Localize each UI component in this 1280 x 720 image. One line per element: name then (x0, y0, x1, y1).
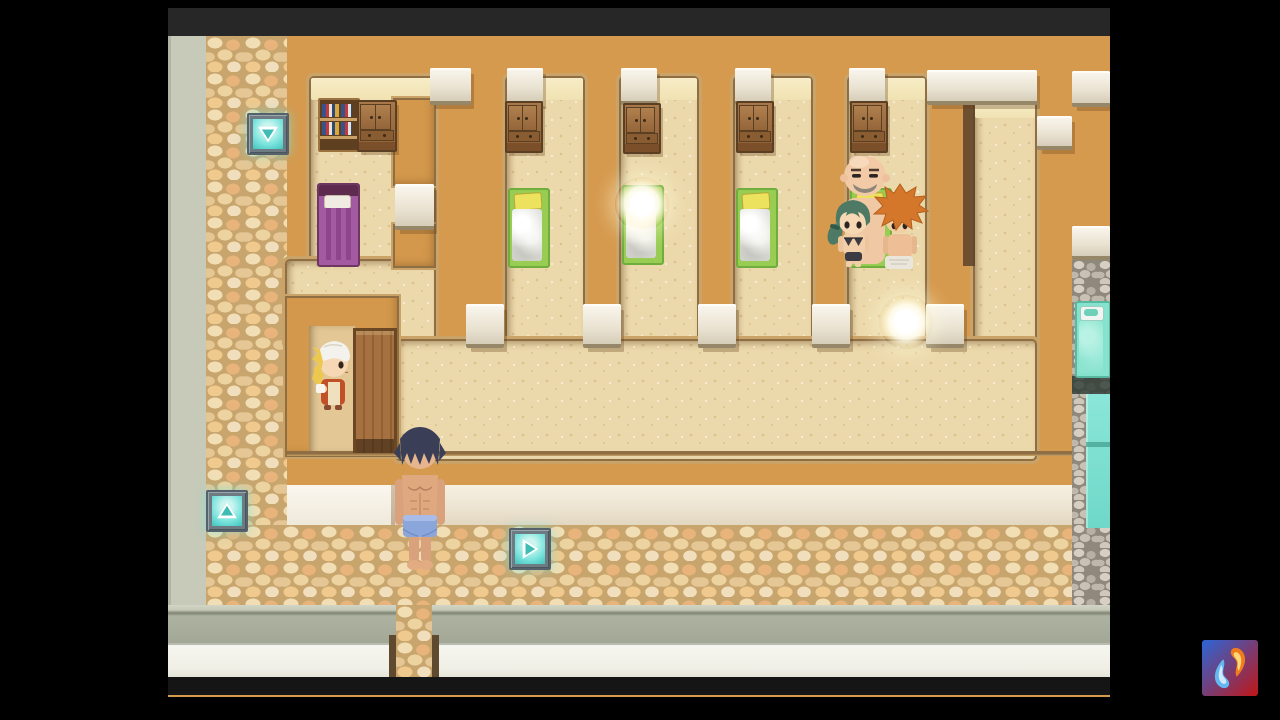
stall1-pillar (395, 100, 434, 184)
cobblestone-path (206, 36, 287, 528)
exit-gap-edge (389, 635, 396, 677)
wall-top-cap (621, 68, 657, 105)
wall-top-cap (507, 68, 543, 105)
green-bed (508, 188, 550, 268)
pillow (324, 195, 351, 209)
teleport-tile-right-arrow[interactable] (509, 528, 551, 570)
main-hall-floor (397, 341, 1035, 459)
wall-top-cap (466, 304, 504, 348)
wardrobe-cabinet (850, 101, 888, 153)
cabinet-door (375, 104, 391, 130)
cabinet-door (508, 105, 523, 131)
wardrobe-cabinet (736, 101, 774, 153)
wardrobe-cabinet (357, 100, 397, 152)
book-row (322, 122, 352, 135)
cabinet-drawer (853, 131, 885, 142)
glow-orb-on-floor (879, 295, 933, 349)
game-window (168, 8, 1110, 697)
shelf (320, 118, 358, 121)
glow-orb-on-bed (615, 177, 669, 231)
cabinet-drawer (626, 133, 658, 144)
letterbox-top-bar (168, 8, 1110, 38)
wall-top-cap (849, 68, 885, 105)
lower-gray-wall (168, 605, 1110, 643)
npc-towel-girl[interactable] (304, 335, 360, 413)
wall-top-cap (927, 70, 1037, 105)
teleport-tile-up-arrow[interactable] (206, 490, 248, 532)
wall-top-cap (698, 304, 736, 348)
cabinet-base (625, 144, 659, 152)
wall-shadow-strip (963, 100, 975, 266)
cabinet-drawer (739, 131, 771, 142)
lit-wall-strip (311, 78, 434, 100)
teleport-tile-down-arrow[interactable] (247, 113, 289, 155)
letterbox-bottom-strip (168, 677, 1110, 695)
cabinet-door (739, 105, 754, 131)
cabinet-base (507, 143, 541, 151)
wall-base-cap (287, 485, 391, 528)
cobblestone-exit-gap (396, 605, 432, 677)
npc-orange-haired-man[interactable] (871, 182, 929, 270)
cabinet-door (640, 107, 655, 133)
lower-white-wall (168, 643, 1110, 679)
wall-top-cap (395, 184, 434, 230)
cobblestone-walkway (206, 525, 1110, 605)
cabinet-base (359, 142, 395, 150)
cabinet-door (753, 105, 768, 131)
flame-logo-icon (1202, 640, 1258, 696)
wall-top-cap (735, 68, 771, 105)
bath-water-divider (1086, 442, 1110, 447)
player-character[interactable] (388, 423, 452, 573)
wall-top-cap (1072, 71, 1110, 107)
wall-top-cap (583, 304, 621, 348)
bath-shadow-band (1072, 376, 1110, 394)
stall1-pillar-foot (395, 226, 434, 266)
recorder-watermark-logo (1202, 640, 1258, 696)
shelf (320, 136, 358, 139)
wardrobe-cabinet (623, 103, 661, 154)
teal-bath-bed (1075, 301, 1110, 378)
cabinet-door (360, 104, 376, 130)
wardrobe-cabinet (505, 101, 543, 153)
lit-wall-strip (975, 103, 1035, 118)
cabinet-door (626, 107, 641, 133)
cabinet-door (522, 105, 537, 131)
bath-water (1086, 394, 1110, 528)
screen (0, 0, 1280, 720)
exit-gap-edge (432, 635, 439, 677)
green-bed (736, 188, 778, 268)
cabinet-base (738, 143, 772, 151)
cabinet-door (853, 105, 868, 131)
outer-wall-strip (168, 36, 210, 605)
purple-bed (317, 183, 360, 267)
bookshelf (318, 98, 360, 152)
cabinet-drawer (360, 130, 394, 141)
wall-top-cap (430, 68, 471, 105)
book-row (322, 104, 352, 117)
blanket (740, 209, 770, 261)
blanket (1079, 321, 1103, 373)
game-scene[interactable] (168, 36, 1110, 697)
wall-top-cap (1037, 116, 1072, 150)
wall-top-cap (812, 304, 850, 348)
cabinet-door (867, 105, 882, 131)
cabinet-drawer (508, 131, 540, 142)
blanket (512, 209, 542, 261)
wall-top-cap (1072, 226, 1110, 260)
pillow-stripe (1084, 309, 1098, 316)
blanket (321, 208, 352, 260)
